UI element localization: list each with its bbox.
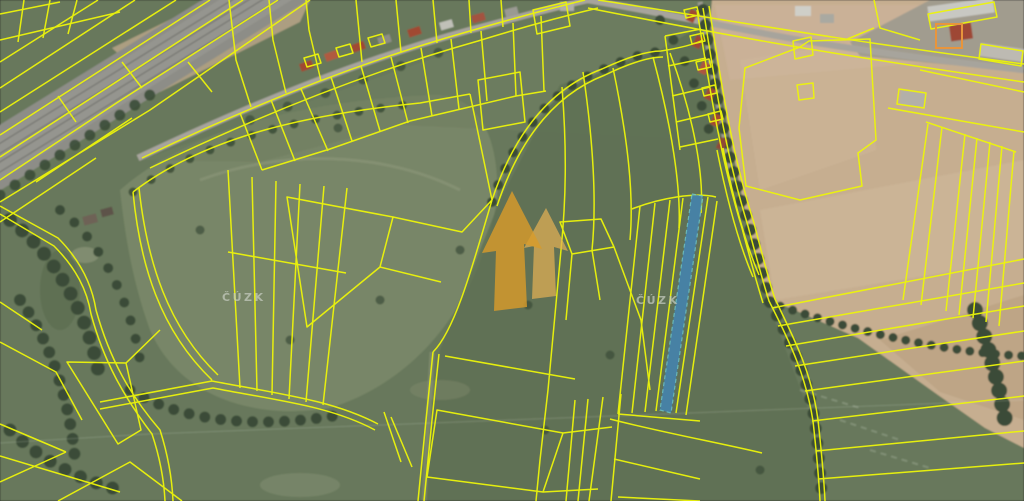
cuzk-watermark-text: ČÚZK [222,291,266,304]
cuzk-watermark-text: ČÚZK [636,294,680,307]
aerial-cadastral-map[interactable]: ČÚZK ČÚZK [0,0,1024,501]
map-canvas: ČÚZK ČÚZK [0,0,1024,501]
worn-patch [260,473,340,497]
house-roof [820,14,834,23]
worn-patch [410,380,470,400]
house-roof [795,6,811,16]
